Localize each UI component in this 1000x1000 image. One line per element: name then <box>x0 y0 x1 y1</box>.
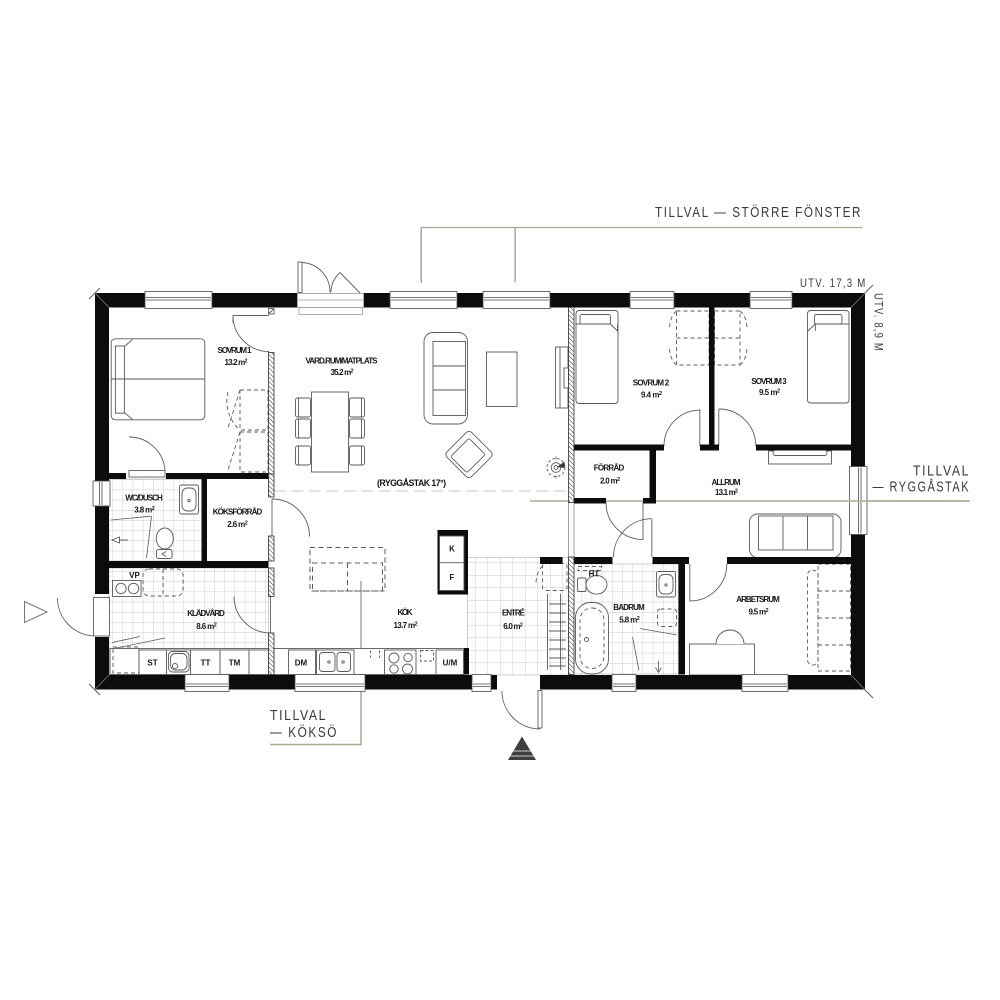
svg-text:FÖRRÅD: FÖRRÅD <box>594 464 625 473</box>
svg-text:9.4 m2: 9.4 m2 <box>641 391 662 400</box>
svg-text:TT: TT <box>201 658 211 667</box>
svg-text:ARBETSRUM: ARBETSRUM <box>736 595 780 604</box>
svg-text:35.2 m2: 35.2 m2 <box>331 368 354 377</box>
svg-text:UTV. 17,3 M: UTV. 17,3 M <box>800 276 867 290</box>
svg-text:F: F <box>450 573 455 582</box>
svg-text:SOVRUM 1: SOVRUM 1 <box>218 346 253 355</box>
svg-text:UTV. 8,9 M: UTV. 8,9 M <box>872 293 886 352</box>
svg-text:HT: HT <box>589 570 600 579</box>
svg-text:6.0 m2: 6.0 m2 <box>503 622 523 631</box>
svg-text:TM: TM <box>229 658 241 667</box>
svg-text:VARD.RUM/MATPLATS: VARD.RUM/MATPLATS <box>306 357 379 366</box>
svg-text:8.6 m2: 8.6 m2 <box>196 622 217 631</box>
svg-text:(RYGGÅSTAK 17°): (RYGGÅSTAK 17°) <box>377 478 446 488</box>
svg-text:U/M: U/M <box>443 658 458 667</box>
svg-text:SOVRUM 2: SOVRUM 2 <box>633 379 670 388</box>
svg-text:— KÖKSÖ: — KÖKSÖ <box>270 723 338 741</box>
svg-text:2.6 m2: 2.6 m2 <box>227 520 248 529</box>
svg-text:TILLVAL: TILLVAL <box>913 463 970 480</box>
svg-text:3.8 m2: 3.8 m2 <box>134 506 155 515</box>
svg-text:13.2 m2: 13.2 m2 <box>225 358 248 367</box>
svg-text:K: K <box>449 545 455 554</box>
svg-text:WC/DUSCH: WC/DUSCH <box>125 493 163 502</box>
svg-text:DM: DM <box>295 658 308 667</box>
svg-text:13.1 m2: 13.1 m2 <box>715 488 738 497</box>
svg-text:TILLVAL: TILLVAL <box>270 707 327 724</box>
svg-text:13.7 m2: 13.7 m2 <box>394 621 418 630</box>
svg-text:9.5 m2: 9.5 m2 <box>759 388 780 397</box>
svg-text:KÖK: KÖK <box>398 608 413 617</box>
svg-text:ENTRÉ: ENTRÉ <box>502 609 526 618</box>
svg-text:KÖKSFÖRRÅD: KÖKSFÖRRÅD <box>213 508 263 517</box>
svg-text:2.0 m2: 2.0 m2 <box>600 477 620 486</box>
svg-text:9.5 m2: 9.5 m2 <box>749 608 769 617</box>
svg-text:BADRUM: BADRUM <box>613 603 645 612</box>
svg-text:ALLRUM: ALLRUM <box>712 478 741 487</box>
svg-text:ST: ST <box>147 658 157 667</box>
svg-text:VP: VP <box>129 571 140 580</box>
svg-text:TILLVAL — STÖRRE FÖNSTER: TILLVAL — STÖRRE FÖNSTER <box>655 203 862 221</box>
svg-text:5.8 m2: 5.8 m2 <box>619 615 640 624</box>
svg-text:KLÄDVÅRD: KLÄDVÅRD <box>187 609 225 618</box>
svg-text:— RYGGÅSTAK: — RYGGÅSTAK <box>873 479 971 496</box>
svg-text:SOVRUM 3: SOVRUM 3 <box>751 377 787 386</box>
